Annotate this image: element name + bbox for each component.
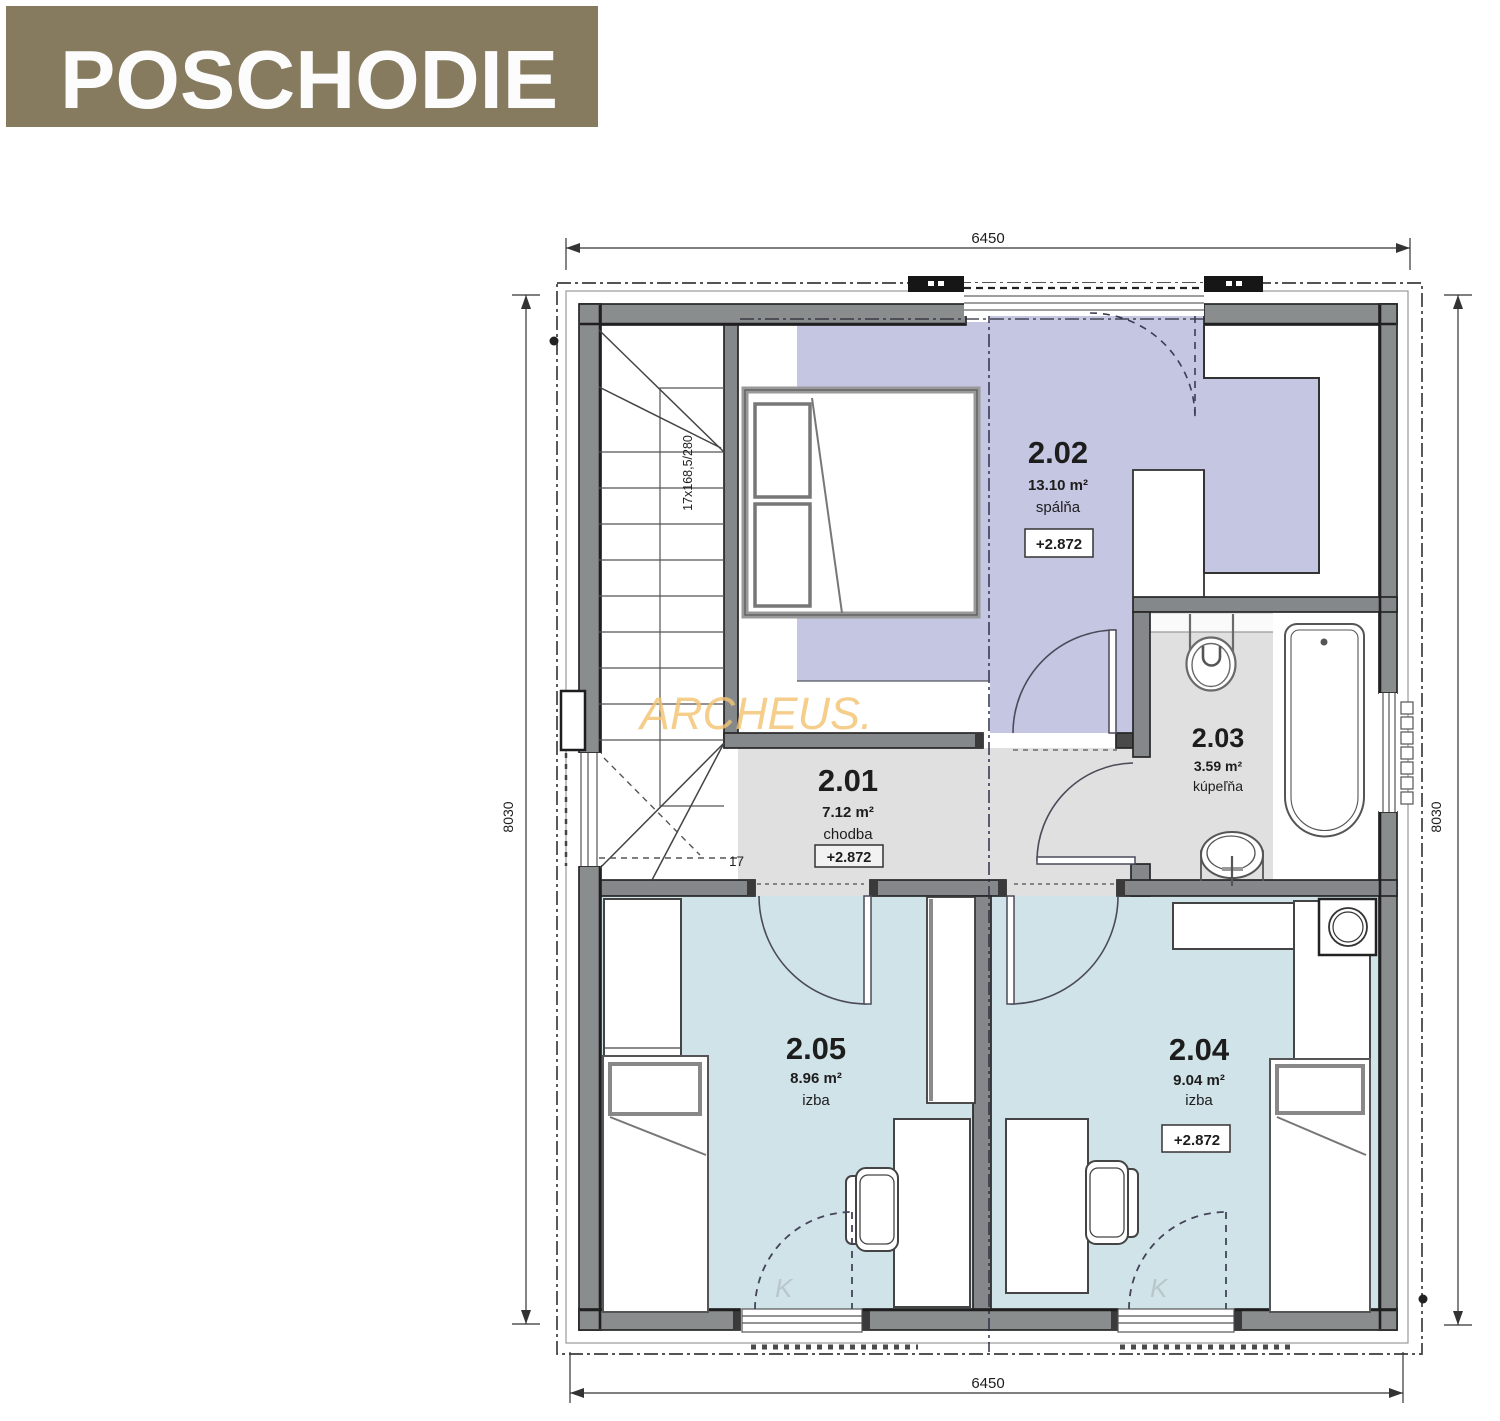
- svg-text:+2.872: +2.872: [1036, 536, 1082, 553]
- svg-text:2.05: 2.05: [786, 1031, 846, 1066]
- svg-text:chodba: chodba: [823, 826, 873, 843]
- svg-text:6450: 6450: [971, 230, 1004, 247]
- svg-text:8030: 8030: [1428, 801, 1444, 832]
- svg-text:13.10 m²: 13.10 m²: [1028, 477, 1088, 494]
- svg-text:spálňa: spálňa: [1036, 499, 1081, 516]
- svg-text:17: 17: [729, 854, 744, 869]
- svg-text:17x168,5/280: 17x168,5/280: [681, 435, 695, 511]
- svg-text:7.12 m²: 7.12 m²: [822, 804, 874, 821]
- svg-text:2.04: 2.04: [1169, 1032, 1230, 1067]
- svg-text:POSCHODIE: POSCHODIE: [60, 33, 558, 126]
- svg-text:2.01: 2.01: [818, 763, 878, 798]
- svg-text:K: K: [1150, 1273, 1169, 1303]
- svg-text:6450: 6450: [971, 1375, 1004, 1392]
- svg-text:2.02: 2.02: [1028, 435, 1088, 470]
- svg-text:+2.872: +2.872: [827, 850, 872, 866]
- svg-text:ARCHEUS.: ARCHEUS.: [637, 688, 873, 739]
- svg-text:izba: izba: [802, 1092, 830, 1109]
- svg-text:9.04 m²: 9.04 m²: [1173, 1072, 1225, 1089]
- svg-text:2.03: 2.03: [1192, 723, 1245, 753]
- svg-text:8030: 8030: [500, 801, 516, 832]
- svg-text:3.59 m²: 3.59 m²: [1194, 758, 1243, 774]
- svg-text:8.96 m²: 8.96 m²: [790, 1070, 842, 1087]
- svg-text:+2.872: +2.872: [1174, 1132, 1220, 1149]
- svg-text:izba: izba: [1185, 1092, 1213, 1109]
- svg-text:kúpeľňa: kúpeľňa: [1193, 778, 1243, 794]
- svg-text:K: K: [775, 1273, 794, 1303]
